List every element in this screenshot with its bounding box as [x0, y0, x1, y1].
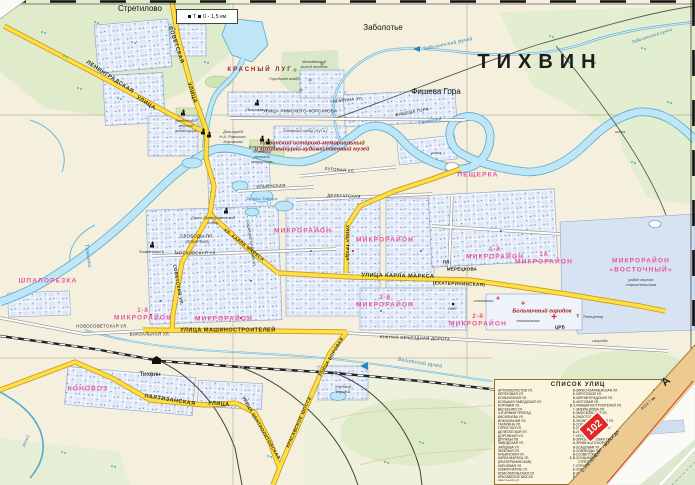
- street-index-entry: КРАСНАЯ УЛ.Б-2: [498, 479, 578, 481]
- poi-square-icon: [188, 15, 191, 18]
- street-index-entry: ШВЕДСКИЙ ПРОЕЗДВ-2: [578, 479, 658, 481]
- stadium-oval: [649, 221, 661, 228]
- street-index-col1: АРТИЛЛЕРИСТОВ УЛ.В-3БЕРЕГОВАЯ УЛ.Б-2БОЛЬ…: [498, 389, 578, 481]
- scale-note-text: 0 - 1,5 км: [203, 14, 226, 20]
- map-root: ТИХВИНСтретиловоЗаболотьеФишева ГораТихв…: [0, 0, 695, 485]
- street-index-title: СПИСОК УЛИЦ: [498, 382, 658, 388]
- street-index-col2: КРАСНОАРМЕЙСКАЯ УЛ.В-2КРУПСКОЙ УЛ.Г-3ЛЕН…: [578, 389, 658, 481]
- station-icon: [152, 359, 161, 364]
- scale-note-box: Т 0 - 1,5 км: [176, 9, 238, 24]
- poi-letter: Т: [193, 14, 196, 20]
- street-index-box: СПИСОК УЛИЦ АРТИЛЛЕРИСТОВ УЛ.В-3БЕРЕГОВА…: [494, 379, 662, 485]
- poi-square-icon: [198, 15, 201, 18]
